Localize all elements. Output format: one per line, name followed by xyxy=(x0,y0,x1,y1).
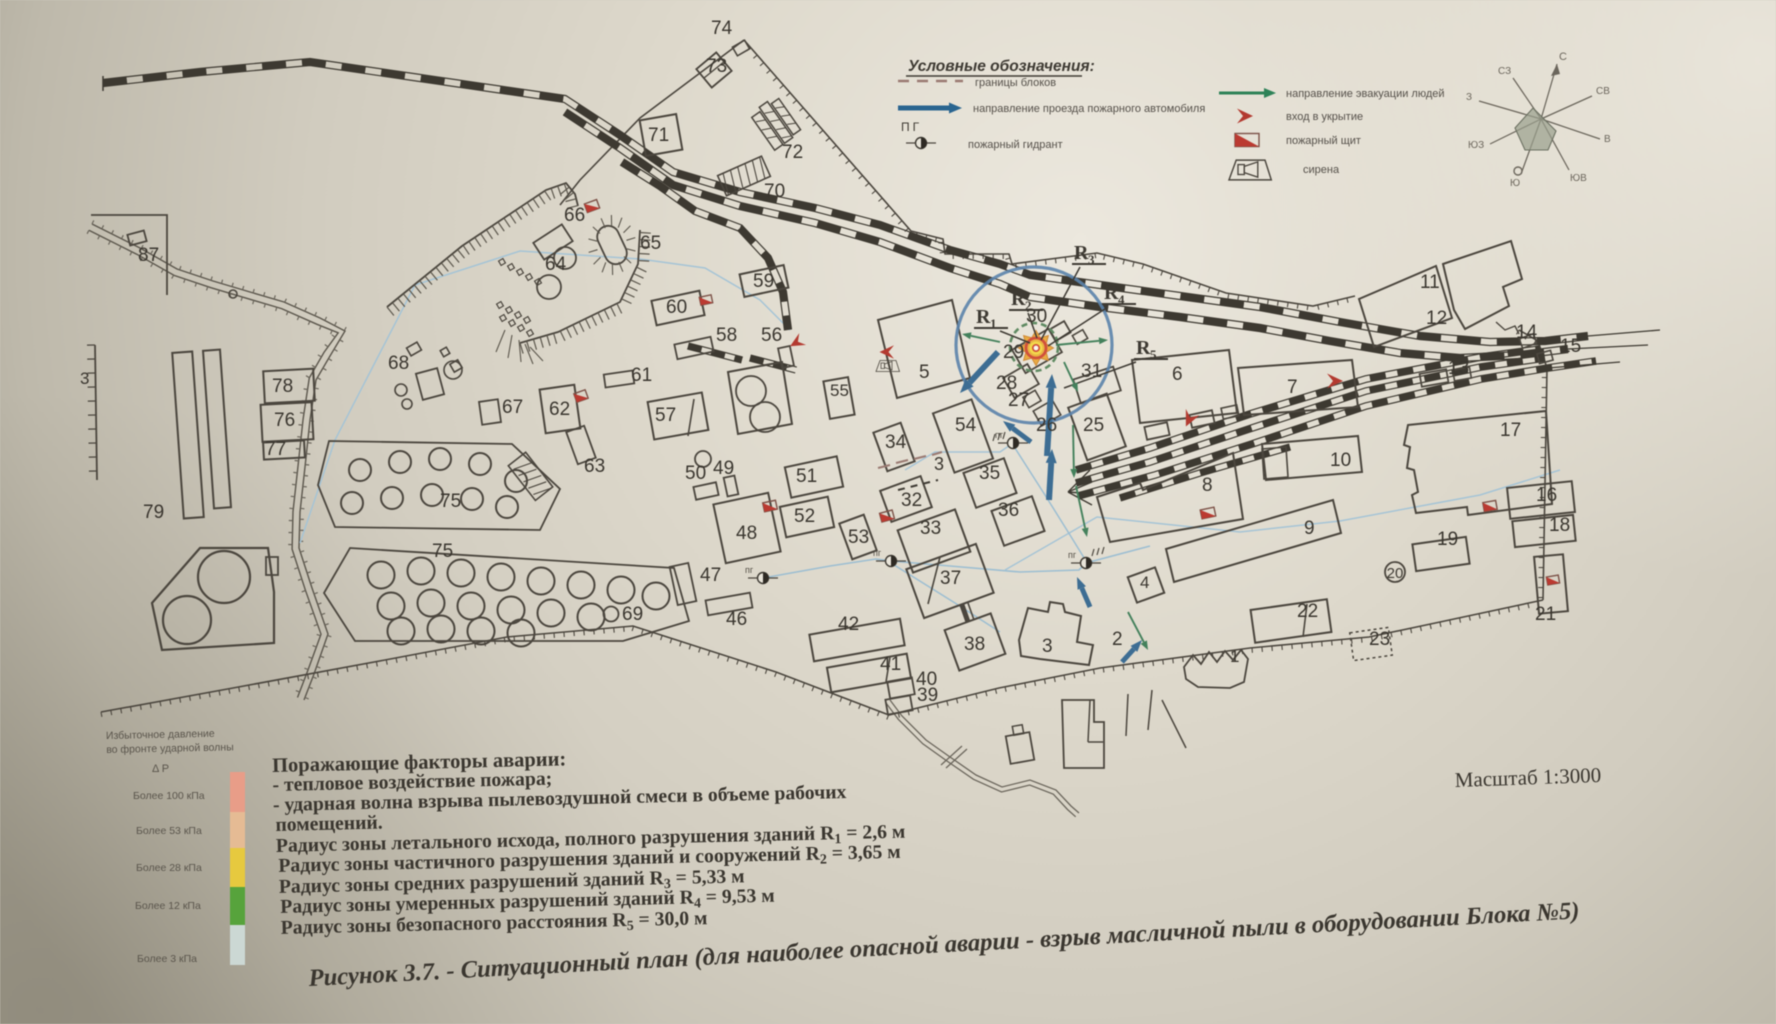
svg-text:R: R xyxy=(1074,242,1089,264)
svg-text:сирена: сирена xyxy=(1303,164,1340,176)
svg-text:38: 38 xyxy=(964,634,985,655)
svg-text:Более 100 кПа: Более 100 кПа xyxy=(133,790,205,802)
svg-text:21: 21 xyxy=(1535,604,1556,625)
svg-text:51: 51 xyxy=(796,466,817,487)
svg-text:58: 58 xyxy=(716,325,737,346)
svg-text:35: 35 xyxy=(979,463,1000,484)
svg-text:6: 6 xyxy=(1172,364,1183,385)
svg-text:R: R xyxy=(976,306,991,328)
svg-text:64: 64 xyxy=(545,254,567,275)
svg-text:42: 42 xyxy=(838,614,859,635)
svg-text:Δ Р: Δ Р xyxy=(152,763,169,775)
svg-text:СЗ: СЗ xyxy=(1498,66,1511,77)
svg-text:3: 3 xyxy=(934,454,944,474)
svg-text:41: 41 xyxy=(880,654,901,675)
svg-text:пожарный гидрант: пожарный гидрант xyxy=(968,139,1063,151)
svg-text:67: 67 xyxy=(502,397,523,418)
svg-text:30: 30 xyxy=(1026,306,1047,327)
svg-text:ЮЗ: ЮЗ xyxy=(1468,140,1484,151)
svg-text:47: 47 xyxy=(700,565,721,586)
svg-text:14: 14 xyxy=(1516,322,1538,343)
svg-text:3: 3 xyxy=(1042,636,1053,657)
svg-text:72: 72 xyxy=(782,142,803,163)
svg-text:Условные обозначения:: Условные обозначения: xyxy=(908,58,1095,75)
svg-text:50: 50 xyxy=(685,463,706,484)
svg-text:52: 52 xyxy=(794,506,815,527)
svg-text:65: 65 xyxy=(640,233,661,254)
svg-text:9: 9 xyxy=(1304,518,1315,539)
svg-text:7: 7 xyxy=(1287,377,1298,398)
svg-text:15: 15 xyxy=(1560,336,1581,357)
svg-text:Масштаб 1:3000: Масштаб 1:3000 xyxy=(1454,763,1601,792)
svg-text:пг: пг xyxy=(873,548,882,558)
svg-text:34: 34 xyxy=(885,432,907,453)
svg-text:ЮВ: ЮВ xyxy=(1570,173,1587,184)
svg-text:63: 63 xyxy=(584,456,605,477)
svg-text:Избыточное давление: Избыточное давление xyxy=(106,728,215,742)
svg-text:1: 1 xyxy=(1230,647,1239,666)
svg-text:19: 19 xyxy=(1437,529,1458,550)
svg-text:26: 26 xyxy=(1036,415,1057,436)
svg-text:С: С xyxy=(1559,51,1567,63)
svg-text:68: 68 xyxy=(388,353,409,374)
svg-text:59: 59 xyxy=(753,271,774,292)
svg-text:77: 77 xyxy=(265,439,286,460)
svg-text:57: 57 xyxy=(655,405,676,426)
svg-text:R: R xyxy=(1104,282,1119,304)
svg-text:61: 61 xyxy=(631,365,652,386)
svg-text:вход в укрытие: вход в укрытие xyxy=(1286,111,1363,123)
svg-text:В: В xyxy=(1604,134,1611,145)
svg-text:13: 13 xyxy=(1448,358,1469,379)
svg-text:10: 10 xyxy=(1330,450,1351,471)
svg-text:5: 5 xyxy=(919,362,930,383)
svg-text:З: З xyxy=(1466,92,1472,103)
svg-text:границы блоков: границы блоков xyxy=(975,77,1056,89)
svg-text:36: 36 xyxy=(998,500,1019,521)
svg-text:79: 79 xyxy=(143,502,164,523)
svg-text:46: 46 xyxy=(726,609,747,630)
svg-text:33: 33 xyxy=(920,518,941,539)
svg-text:53: 53 xyxy=(848,527,869,548)
svg-text:3: 3 xyxy=(80,369,89,388)
svg-text:23: 23 xyxy=(1369,629,1390,650)
svg-text:направление эвакуации людей: направление эвакуации людей xyxy=(1286,88,1445,100)
svg-text:16: 16 xyxy=(1536,485,1557,506)
svg-text:12: 12 xyxy=(1426,308,1447,329)
svg-text:71: 71 xyxy=(648,125,669,146)
svg-text:направление проезда пожарного: направление проезда пожарного автомобиля xyxy=(973,103,1205,115)
svg-text:60: 60 xyxy=(666,297,687,318)
svg-text:25: 25 xyxy=(1083,415,1104,436)
svg-text:75: 75 xyxy=(440,491,461,512)
svg-text:62: 62 xyxy=(549,399,570,420)
svg-text:37: 37 xyxy=(940,568,961,589)
svg-text:18: 18 xyxy=(1549,515,1570,536)
svg-text:48: 48 xyxy=(736,523,757,544)
svg-text:56: 56 xyxy=(761,325,782,346)
svg-text:70: 70 xyxy=(764,181,785,202)
svg-text:69: 69 xyxy=(622,604,643,625)
svg-text:20: 20 xyxy=(1387,565,1404,582)
svg-text:ПГ: ПГ xyxy=(901,120,922,134)
svg-text:пожарный щит: пожарный щит xyxy=(1286,135,1361,147)
svg-text:76: 76 xyxy=(274,410,295,431)
svg-text:49: 49 xyxy=(713,458,734,479)
svg-text:22: 22 xyxy=(1297,601,1318,622)
svg-text:73: 73 xyxy=(706,56,727,77)
svg-text:74: 74 xyxy=(711,18,733,39)
svg-text:Более 28 кПа: Более 28 кПа xyxy=(136,862,202,874)
svg-text:32: 32 xyxy=(901,490,922,511)
svg-text:Более 3 кПа: Более 3 кПа xyxy=(137,953,197,965)
svg-text:Более 12 кПа: Более 12 кПа xyxy=(135,900,201,912)
svg-text:28: 28 xyxy=(996,373,1017,394)
svg-text:8: 8 xyxy=(1202,475,1213,496)
svg-text:87: 87 xyxy=(138,245,159,266)
svg-text:75: 75 xyxy=(432,541,453,562)
svg-text:17: 17 xyxy=(1500,420,1521,441)
svg-text:пг: пг xyxy=(745,565,754,575)
svg-text:66: 66 xyxy=(564,205,585,226)
svg-text:55: 55 xyxy=(830,381,849,400)
svg-text:R: R xyxy=(1136,337,1151,359)
svg-text:29: 29 xyxy=(1003,342,1024,363)
svg-text:Более 53 кПа: Более 53 кПа xyxy=(136,825,202,837)
svg-text:31: 31 xyxy=(1081,361,1102,382)
svg-text:4: 4 xyxy=(1140,573,1149,592)
svg-text:11: 11 xyxy=(1420,272,1440,293)
svg-text:54: 54 xyxy=(955,415,977,436)
svg-text:Ю: Ю xyxy=(1510,178,1520,189)
svg-text:пг: пг xyxy=(1068,550,1077,560)
svg-text:39: 39 xyxy=(917,685,938,706)
svg-text:R: R xyxy=(1011,288,1026,310)
svg-text:2: 2 xyxy=(1112,629,1123,650)
svg-text:СВ: СВ xyxy=(1596,86,1610,97)
svg-text:78: 78 xyxy=(272,376,293,397)
